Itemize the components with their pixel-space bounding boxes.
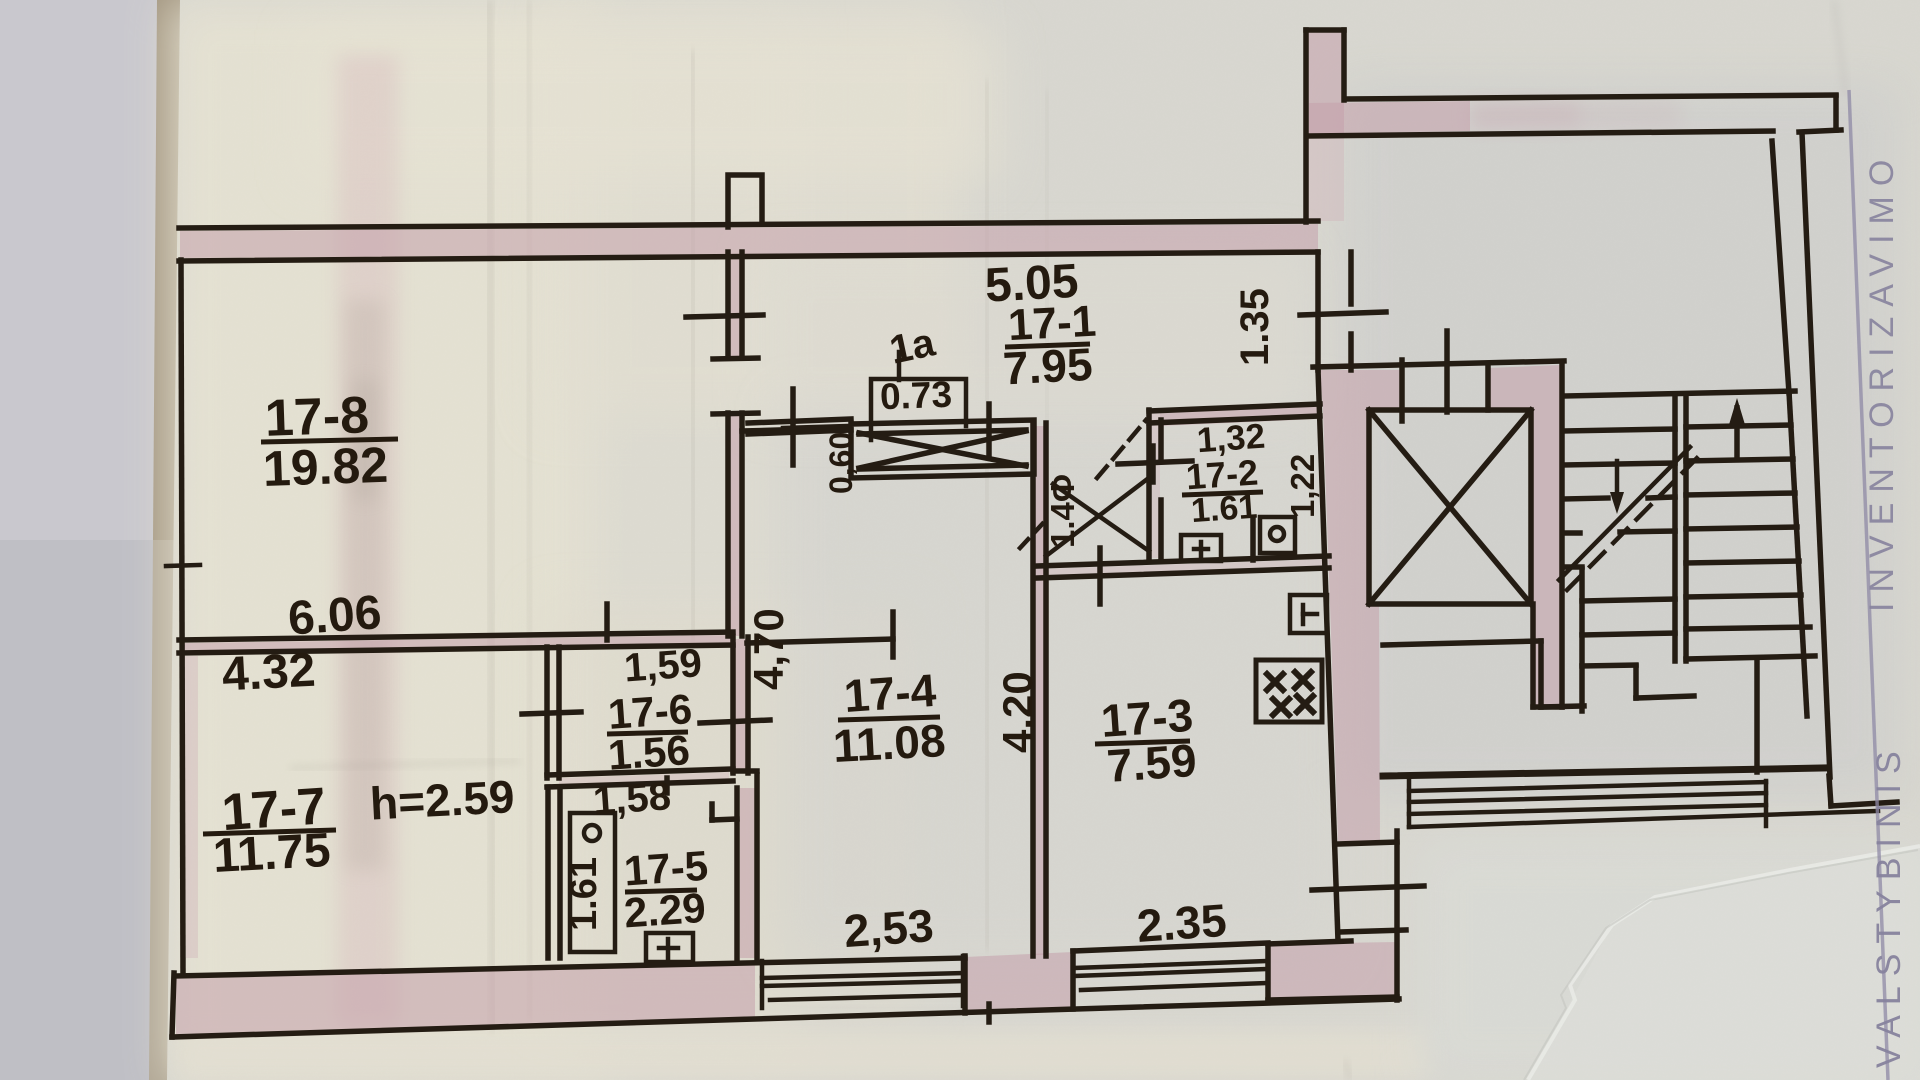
svg-text:2.29: 2.29	[622, 884, 707, 937]
svg-text:2.35: 2.35	[1135, 894, 1228, 952]
svg-text:4.32: 4.32	[221, 644, 317, 702]
svg-text:17-4: 17-4	[842, 664, 938, 722]
svg-text:1.61: 1.61	[563, 857, 605, 931]
svg-text:h=2.59: h=2.59	[369, 770, 516, 829]
svg-text:1,22: 1,22	[1284, 454, 1321, 518]
svg-text:1,59: 1,59	[623, 641, 704, 690]
svg-text:4,70: 4,70	[745, 608, 792, 690]
svg-text:6.06: 6.06	[286, 586, 383, 645]
svg-text:1.61: 1.61	[1190, 488, 1259, 531]
svg-text:11.75: 11.75	[212, 824, 332, 883]
svg-text:INVENTORIZAVIMO: INVENTORIZAVIMO	[1863, 150, 1901, 612]
svg-text:1.4Ф: 1.4Ф	[1044, 474, 1081, 548]
svg-text:1.56: 1.56	[606, 726, 691, 779]
svg-text:7.95: 7.95	[1002, 338, 1094, 395]
svg-text:19.82: 19.82	[262, 437, 389, 497]
svg-text:2,53: 2,53	[842, 899, 935, 957]
svg-text:7.59: 7.59	[1105, 734, 1198, 792]
svg-text:VALSTYBINIS: VALSTYBINIS	[1870, 741, 1908, 1068]
svg-text:0,60: 0,60	[823, 432, 859, 494]
svg-text:11.08: 11.08	[832, 714, 947, 772]
svg-text:4.20: 4.20	[994, 671, 1041, 753]
svg-text:1.35: 1.35	[1233, 288, 1277, 366]
svg-text:1,58: 1,58	[592, 774, 673, 823]
svg-text:0.73: 0.73	[879, 374, 952, 417]
